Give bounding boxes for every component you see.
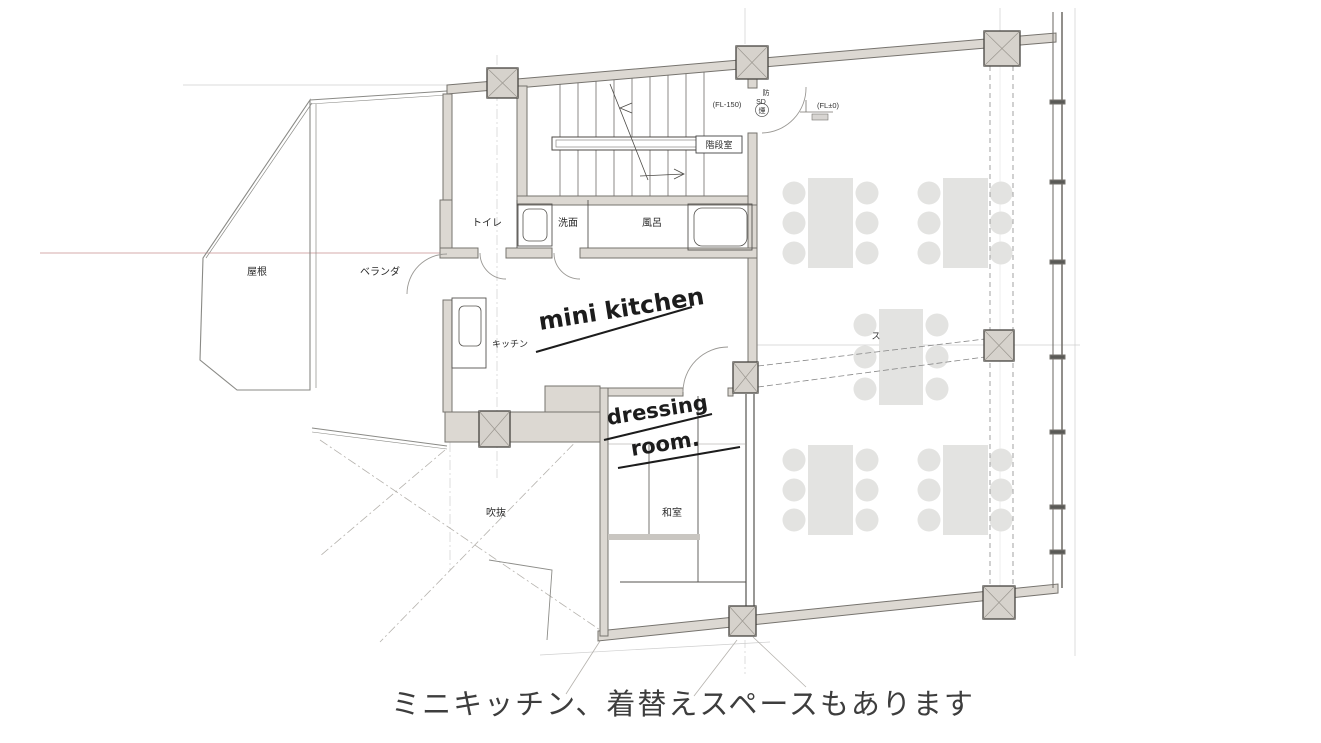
- water-bottom-wall: [580, 248, 757, 258]
- water-bottom-wall: [440, 248, 478, 258]
- mullion: [1050, 355, 1065, 359]
- chair: [854, 346, 877, 369]
- table: [879, 309, 923, 405]
- page-caption: ミニキッチン、着替えスペースもあります: [391, 688, 975, 721]
- column: [733, 362, 758, 393]
- chair: [856, 479, 879, 502]
- stair-arrow-up: [620, 103, 632, 113]
- atrium-diagonals: [320, 420, 606, 642]
- table: [943, 445, 988, 535]
- column: [729, 606, 756, 636]
- chair: [926, 346, 949, 369]
- washroom-door-arc: [554, 253, 580, 279]
- mainroom-left-wall: [748, 133, 757, 205]
- chair: [918, 479, 941, 502]
- label-stairwell: 階段室: [705, 139, 732, 150]
- label-kitchen: キッチン: [492, 339, 528, 349]
- dressing-left-wall: [600, 388, 608, 636]
- building-left-wall: [443, 94, 452, 200]
- label-japanese-room: 和室: [662, 506, 682, 519]
- tables-and-chairs: [783, 178, 1013, 535]
- water-bottom-wall: [506, 248, 552, 258]
- table: [808, 445, 853, 535]
- chair: [856, 509, 879, 532]
- label-screen: ス: [871, 331, 880, 341]
- water-area: [517, 200, 752, 250]
- column: [983, 586, 1015, 619]
- dressing-top-wall: [600, 388, 683, 396]
- label-veranda: ベランダ: [360, 265, 400, 278]
- column: [479, 411, 510, 447]
- bathtub-inner: [694, 208, 747, 246]
- chair: [990, 449, 1013, 472]
- label-smoke-top: 防: [763, 88, 770, 97]
- walls: [440, 33, 1058, 641]
- atrium-edge: [489, 560, 552, 640]
- chair: [926, 314, 949, 337]
- label-washroom: 洗面: [558, 217, 578, 229]
- stair-direction-line: [640, 174, 684, 176]
- chair: [783, 182, 806, 205]
- stairwell: [552, 72, 704, 196]
- label-toilet: トイレ: [472, 218, 502, 229]
- roof-outline: [200, 100, 316, 390]
- building-left-wall: [443, 300, 452, 412]
- dressing-top-wall: [728, 388, 733, 396]
- mullion: [1050, 260, 1065, 264]
- grid-lines: [183, 8, 1080, 674]
- chair: [990, 479, 1013, 502]
- chair: [918, 449, 941, 472]
- floor-plan-drawing: 屋根 ベランダ トイレ 洗面 風呂 キッチン 階段室 和室 吹抜 ス (FL-1…: [0, 0, 1321, 743]
- stair-handrail: [552, 137, 704, 150]
- chair: [918, 509, 941, 532]
- chair: [990, 212, 1013, 235]
- chair: [783, 479, 806, 502]
- stair-left-wall: [517, 86, 527, 200]
- kitchen-bottom-band: [445, 412, 600, 442]
- mullion: [1050, 505, 1065, 509]
- label-fl-minus150: (FL-150): [713, 100, 742, 109]
- table: [808, 178, 853, 268]
- window-wall-right: [1050, 12, 1065, 588]
- chair: [856, 449, 879, 472]
- mullion: [1050, 550, 1065, 554]
- kitchen-fixtures: [452, 298, 486, 368]
- kitchen-counter-block: [545, 386, 600, 412]
- under-building-lines: [566, 637, 806, 696]
- column: [736, 46, 768, 79]
- chair: [918, 182, 941, 205]
- label-atrium: 吹抜: [486, 506, 506, 519]
- mullion: [1050, 100, 1065, 104]
- column: [984, 31, 1020, 66]
- veranda-door-arc: [407, 254, 447, 294]
- chair: [856, 182, 879, 205]
- label-smoke-bottom: 煙: [759, 106, 766, 115]
- chair: [918, 242, 941, 265]
- floor-plan-page: 屋根 ベランダ トイレ 洗面 風呂 キッチン 階段室 和室 吹抜 ス (FL-1…: [0, 0, 1321, 743]
- chair: [990, 182, 1013, 205]
- toilet-door-arc: [480, 253, 506, 279]
- technical-labels: (FL-150) (FL±0) 防 SD 煙: [713, 88, 840, 115]
- chair: [783, 509, 806, 532]
- chair: [854, 378, 877, 401]
- label-smoke-mid: SD: [756, 99, 766, 106]
- washbasin-bowl: [523, 209, 547, 241]
- chair: [783, 242, 806, 265]
- chair: [856, 212, 879, 235]
- mainroom-left-wall: [748, 205, 757, 362]
- bathtub: [688, 204, 752, 250]
- chair: [918, 212, 941, 235]
- chair: [783, 212, 806, 235]
- dressing-door-arc: [683, 347, 728, 392]
- chair: [856, 242, 879, 265]
- chair: [926, 378, 949, 401]
- chair: [990, 242, 1013, 265]
- chair: [783, 449, 806, 472]
- mullion: [1050, 180, 1065, 184]
- label-roof: 屋根: [247, 265, 267, 278]
- column: [487, 68, 518, 98]
- column: [984, 330, 1014, 361]
- label-bath: 風呂: [642, 217, 662, 229]
- table: [943, 178, 988, 268]
- stair-direction-line: [610, 84, 648, 180]
- chair: [990, 509, 1013, 532]
- mullion: [1050, 430, 1065, 434]
- label-fl-zero: (FL±0): [817, 101, 840, 110]
